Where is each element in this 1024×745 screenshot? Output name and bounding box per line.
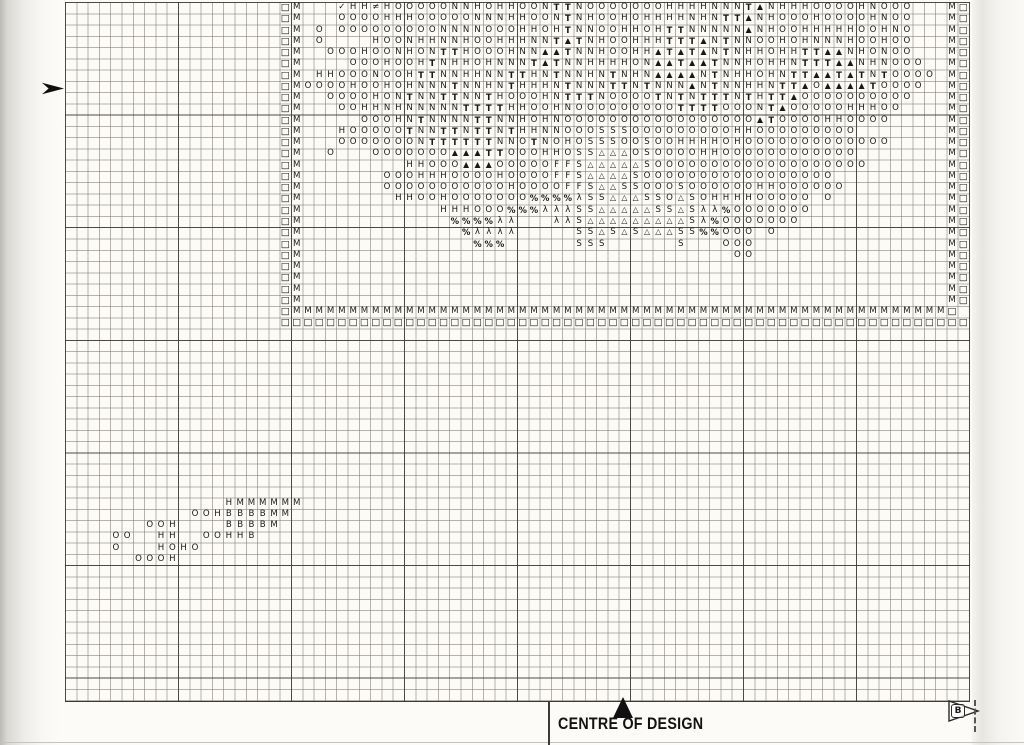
stitch-cell: H [223,498,234,509]
stitch-cell: O [664,148,675,159]
stitch-cell: O [607,2,618,13]
stitch-cell: O [856,25,867,36]
stitch-cell: S [687,205,698,216]
stitch-cell: □ [494,317,505,328]
stitch-cell: O [833,92,844,103]
stitch-cell: □ [280,160,291,171]
stitch-cell: O [664,171,675,182]
stitch-cell: S [574,148,585,159]
stitch-cell: □ [946,306,957,317]
stitch-cell: M [291,261,302,272]
stitch-cell: H [833,115,844,126]
stitch-cell: □ [280,13,291,24]
stitch-cell: H [698,148,709,159]
stitch-cell: □ [958,295,969,306]
stitch-cell: O [867,137,878,148]
stitch-cell: ▲ [800,81,811,92]
stitch-cell: H [585,13,596,24]
stitch-cell: O [800,182,811,193]
stitch-cell: B [235,509,246,520]
stitch-cell: O [381,25,392,36]
stitch-cell: O [743,216,754,227]
stitch-cell: O [800,148,811,159]
stitch-cell: □ [788,317,799,328]
stitch-cell: M [314,306,325,317]
stitch-cell: % [472,239,483,250]
stitch-cell: O [822,92,833,103]
stitch-cell: T [879,70,890,81]
stitch-cell: O [359,137,370,148]
stitch-cell: λ [483,227,494,238]
stitch-cell: N [653,81,664,92]
stitch-cell: □ [280,36,291,47]
stitch-cell: O [720,126,731,137]
stitch-cell: O [788,205,799,216]
stitch-cell: N [461,81,472,92]
stitch-cell: T [483,148,494,159]
stitch-cell: N [585,47,596,58]
stitch-cell: ▲ [472,160,483,171]
stitch-cell: B [246,509,257,520]
stitch-cell: λ [494,216,505,227]
stitch-cell: H [867,103,878,114]
stitch-cell: λ [709,205,720,216]
stitch-cell: N [709,36,720,47]
stitch-cell: M [641,306,652,317]
stitch-cell: O [472,193,483,204]
stitch-cell: N [427,103,438,114]
stitch-cell: T [732,13,743,24]
stitch-cell: O [370,148,381,159]
stitch-cell: O [743,239,754,250]
stitch-cell: N [438,25,449,36]
stitch-cell: M [879,306,890,317]
stitch-cell: N [754,13,765,24]
stitch-cell: H [167,554,178,565]
stitch-cell: S [687,216,698,227]
stitch-cell: O [393,148,404,159]
stitch-cell: M [562,306,573,317]
stitch-cell: T [788,81,799,92]
stitch-cell: T [607,70,618,81]
stitch-cell: □ [720,317,731,328]
stitch-cell: M [788,306,799,317]
stitch-cell: □ [958,148,969,159]
stitch-cell: N [461,115,472,126]
stitch-cell: H [743,81,754,92]
stitch-cell: O [461,182,472,193]
stitch-cell: □ [958,205,969,216]
stitch-cell: O [800,92,811,103]
stitch-cell: N [438,36,449,47]
stitch-cell: N [574,25,585,36]
stitch-cell: O [562,148,573,159]
stitch-cell: S [675,182,686,193]
stitch-cell: M [291,13,302,24]
stitch-cell: ▲ [653,47,664,58]
stitch-cell: O [675,126,686,137]
stitch-cell: □ [822,317,833,328]
stitch-cell: □ [732,317,743,328]
stitch-cell: △ [664,216,675,227]
stitch-cell: O [901,13,912,24]
stitch-cell: N [483,13,494,24]
stitch-cell: H [348,2,359,13]
stitch-cell: O [494,205,505,216]
stitch-cell: O [788,126,799,137]
stitch-cell: N [540,126,551,137]
stitch-cell: O [777,160,788,171]
stitch-cell: H [325,70,336,81]
stitch-cell: O [754,70,765,81]
stitch-cell: O [348,70,359,81]
stitch-cell: H [461,58,472,69]
stitch-cell: N [879,47,890,58]
stitch-cell: O [788,216,799,227]
stitch-cell: O [879,103,890,114]
stitch-cell: O [822,193,833,204]
stitch-cell: M [291,205,302,216]
stitch-cell: ▲ [540,58,551,69]
stitch-cell: □ [506,317,517,328]
stitch-cell: O [325,81,336,92]
stitch-cell: O [800,103,811,114]
stitch-cell: O [867,115,878,126]
stitch-cell: ▲ [833,81,844,92]
stitch-cell: T [551,58,562,69]
stitch-cell: O [404,148,415,159]
stitch-cell: O [766,36,777,47]
stitch-cell: □ [958,216,969,227]
stitch-cell: % [551,193,562,204]
stitch-cell: △ [596,171,607,182]
stitch-cell: M [268,520,279,531]
stitch-cell: O [653,182,664,193]
stitch-cell: O [438,182,449,193]
stitch-cell: H [743,47,754,58]
stitch-cell: H [619,25,630,36]
stitch-cell: O [720,148,731,159]
stitch-cell: O [901,36,912,47]
stitch-cell: □ [958,261,969,272]
stitch-cell: N [415,92,426,103]
stitch-cell: % [461,227,472,238]
stitch-cell: O [754,160,765,171]
stitch-cell: H [630,25,641,36]
stitch-cell: □ [958,182,969,193]
stitch-cell: H [178,543,189,554]
stitch-cell: N [540,137,551,148]
stitch-cell: N [551,92,562,103]
stitch-cell: H [404,13,415,24]
stitch-cell: H [709,193,720,204]
stitch-cell: N [438,58,449,69]
stitch-cell: M [528,306,539,317]
stitch-cell: O [562,115,573,126]
stitch-cell: O [664,160,675,171]
stitch-cell: □ [404,317,415,328]
stitch-cell: H [404,47,415,58]
stitch-cell: O [777,205,788,216]
stitch-cell: □ [946,317,957,328]
stitch-cell: T [720,36,731,47]
stitch-cell: T [427,70,438,81]
stitch-cell: O [336,137,347,148]
stitch-cell: O [415,182,426,193]
stitch-cell: N [867,70,878,81]
stitch-cell: ▲ [822,81,833,92]
stitch-cell: ▲ [822,47,833,58]
stitch-cell: O [133,554,144,565]
stitch-cell: T [562,13,573,24]
stitch-cell: H [607,58,618,69]
stitch-cell: M [946,103,957,114]
stitch-cell: □ [958,160,969,171]
stitch-cell: O [833,2,844,13]
stitch-cell: △ [607,205,618,216]
stitch-cell: H [596,58,607,69]
stitch-cell: H [370,92,381,103]
stitch-cell: △ [664,227,675,238]
stitch-cell: O [732,216,743,227]
stitch-cell: H [732,126,743,137]
stitch-cell: O [189,509,200,520]
stitch-cell: O [506,171,517,182]
stitch-cell: N [494,137,505,148]
stitch-cell: T [562,81,573,92]
stitch-cell: H [336,126,347,137]
stitch-cell: T [607,81,618,92]
stitch-cell: H [517,126,528,137]
stitch-cell: T [472,137,483,148]
stitch-cell: O [607,36,618,47]
stitch-cell: O [483,47,494,58]
stitch-cell: H [766,25,777,36]
stitch-cell: O [540,13,551,24]
stitch-cell: O [404,137,415,148]
stitch-cell: T [483,92,494,103]
stitch-cell: □ [743,317,754,328]
stitch-cell: □ [958,317,969,328]
stitch-cell: M [856,306,867,317]
stitch-cell: O [641,92,652,103]
stitch-cell: O [867,47,878,58]
stitch-cell: T [800,47,811,58]
stitch-cell: T [675,92,686,103]
stitch-cell: M [291,2,302,13]
stitch-cell: H [528,25,539,36]
stitch-cell: N [540,2,551,13]
stitch-cell: O [720,216,731,227]
stitch-cell: O [641,182,652,193]
stitch-cell: O [833,148,844,159]
stitch-cell: H [540,115,551,126]
stitch-cell: O [528,171,539,182]
stitch-cell: H [359,2,370,13]
stitch-cell: □ [924,317,935,328]
stitch-cell: T [551,70,562,81]
stitch-cell: O [845,148,856,159]
stitch-cell: N [822,36,833,47]
stitch-cell: △ [619,160,630,171]
stitch-cell: △ [607,193,618,204]
stitch-cell: N [687,92,698,103]
stitch-cell: M [291,306,302,317]
stitch-cell: O [528,115,539,126]
stitch-cell: M [946,47,957,58]
stitch-cell: □ [958,70,969,81]
stitch-cell: M [946,193,957,204]
stitch-cell: □ [800,317,811,328]
stitch-cell: O [653,103,664,114]
stitch-cell: O [720,137,731,148]
stitch-cell: M [811,306,822,317]
stitch-cell: ▲ [562,36,573,47]
stitch-cell: □ [777,317,788,328]
stitch-cell: O [359,13,370,24]
stitch-cell: H [517,25,528,36]
stitch-cell: O [393,126,404,137]
stitch-cell: H [653,13,664,24]
stitch-cell: O [754,216,765,227]
stitch-cell: ▲ [687,81,698,92]
stitch-cell: N [641,70,652,81]
stitch-cell: O [709,126,720,137]
stitch-cell: H [540,81,551,92]
stitch-cell: O [528,160,539,171]
stitch-cell: M [800,306,811,317]
stitch-cell: S [653,205,664,216]
scan-edge-right [972,0,1024,745]
stitch-cell: O [890,47,901,58]
stitch-cell: N [449,36,460,47]
stitch-cell: N [732,2,743,13]
stitch-cell: O [427,13,438,24]
stitch-cell: O [879,2,890,13]
stitch-cell: H [494,2,505,13]
stitch-cell: □ [551,317,562,328]
stitch-cell: □ [607,317,618,328]
stitch-cell: O [664,137,675,148]
stitch-cell: H [415,36,426,47]
stitch-cell: λ [506,216,517,227]
stitch-cell: H [404,70,415,81]
stitch-cell: H [641,47,652,58]
stitch-cell: △ [607,160,618,171]
stitch-cell: ▲ [754,115,765,126]
stitch-cell: O [788,182,799,193]
stitch-cell: O [641,103,652,114]
stitch-cell: N [664,81,675,92]
stitch-cell: λ [574,193,585,204]
stitch-cell: □ [517,317,528,328]
stitch-cell: □ [664,317,675,328]
stitch-cell: T [687,103,698,114]
stitch-cell: O [845,160,856,171]
stitch-cell: T [483,137,494,148]
stitch-cell: H [664,13,675,24]
stitch-cell: H [822,115,833,126]
stitch-cell: O [720,115,731,126]
stitch-cell: M [901,306,912,317]
stitch-cell: H [675,13,686,24]
stitch-cell: H [551,25,562,36]
stitch-cell: M [946,58,957,69]
stitch-cell: N [551,115,562,126]
stitch-cell: N [461,2,472,13]
stitch-cell: T [822,58,833,69]
stitch-cell: M [291,70,302,81]
stitch-cell: ▲ [856,81,867,92]
stitch-cell: % [449,216,460,227]
stitch-cell: M [393,306,404,317]
stitch-cell: N [754,103,765,114]
stitch-cell: H [867,58,878,69]
stitch-cell: O [461,193,472,204]
stitch-cell: ▲ [845,70,856,81]
stitch-cell: O [404,58,415,69]
stitch-cell: M [291,137,302,148]
stitch-cell: O [743,227,754,238]
stitch-cell: H [800,36,811,47]
stitch-cell: □ [280,227,291,238]
stitch-cell: O [788,193,799,204]
stitch-cell: H [540,148,551,159]
stitch-cell: T [483,115,494,126]
stitch-cell: T [856,70,867,81]
stitch-cell: □ [280,58,291,69]
stitch-cell: M [291,148,302,159]
stitch-cell: O [822,171,833,182]
centre-divider-line [548,702,550,745]
stitch-cell: O [732,103,743,114]
stitch-cell: N [732,25,743,36]
stitch-cell: N [709,25,720,36]
stitch-cell: □ [291,317,302,328]
stitch-cell: H [506,182,517,193]
stitch-cell: N [449,103,460,114]
stitch-cell: S [585,227,596,238]
stitch-cell: □ [325,317,336,328]
stitch-cell: B [257,509,268,520]
stitch-cell: H [461,36,472,47]
stitch-cell: O [325,148,336,159]
stitch-cell: M [348,306,359,317]
stitch-cell: N [879,58,890,69]
stitch-cell: □ [370,317,381,328]
stitch-cell: □ [438,317,449,328]
stitch-cell: O [574,126,585,137]
stitch-cell: O [901,58,912,69]
stitch-cell: O [777,171,788,182]
stitch-cell: N [540,36,551,47]
stitch-cell: O [540,25,551,36]
stitch-cell: S [574,205,585,216]
stitch-cell: □ [958,137,969,148]
stitch-cell: M [946,216,957,227]
stitch-cell: O [913,58,924,69]
stitch-cell: H [641,13,652,24]
stitch-cell: △ [596,182,607,193]
stitch-cell: H [766,13,777,24]
stitch-cell: H [630,36,641,47]
stitch-cell: T [506,81,517,92]
stitch-cell: N [551,126,562,137]
stitch-cell: △ [607,148,618,159]
stitch-cell: M [946,250,957,261]
stitch-cell: O [619,103,630,114]
stitch-cell: N [494,126,505,137]
